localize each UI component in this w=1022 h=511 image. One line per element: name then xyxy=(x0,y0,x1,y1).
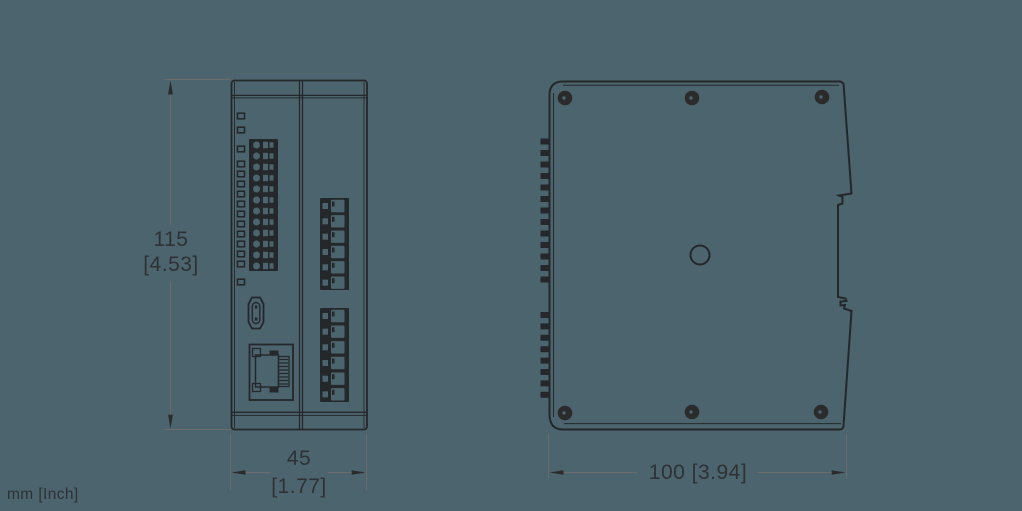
terminal-contact xyxy=(263,252,268,258)
screw-center-dot xyxy=(689,96,692,99)
terminal-contact xyxy=(263,197,268,203)
terminal-contact xyxy=(263,164,268,170)
terminal-contact xyxy=(332,327,335,332)
connector-pin-icon xyxy=(541,173,550,179)
connector-pin-icon xyxy=(541,358,550,364)
terminal-contact xyxy=(270,219,274,224)
connector-pin-icon xyxy=(541,150,550,156)
connector-pin-icon xyxy=(541,231,550,237)
terminal-contact xyxy=(332,390,335,395)
terminal-opening xyxy=(253,219,260,226)
terminal-opening xyxy=(253,164,260,171)
terminal-contact xyxy=(332,374,335,379)
terminal-block-right-lower xyxy=(320,308,349,402)
terminal-contact xyxy=(270,153,274,158)
terminal-screw-slot xyxy=(323,360,329,366)
terminal-opening xyxy=(253,263,260,270)
arrow-right-icon xyxy=(352,470,366,475)
led-indicator-icon xyxy=(238,146,245,152)
terminal-contact xyxy=(270,230,274,235)
terminal-contact xyxy=(270,263,274,268)
terminal-screw-slot xyxy=(323,249,329,255)
connector-pin-icon xyxy=(541,392,550,398)
terminal-screw-slot xyxy=(323,391,329,397)
connector-pin-icon xyxy=(541,208,550,214)
terminal-opening xyxy=(253,153,260,160)
led-indicator-icon xyxy=(238,113,245,119)
connector-pin-icon xyxy=(541,335,550,341)
terminal-contact xyxy=(332,263,335,268)
terminal-contact xyxy=(263,175,268,181)
technical-drawing-canvas: 115 [4.53] 45 [1.77] 100 [3.94] mm [Inch… xyxy=(0,0,1022,511)
terminal-contact xyxy=(263,153,268,159)
ethernet-port-icon xyxy=(250,345,294,401)
terminal-contact xyxy=(332,343,335,348)
front-width-dimension-mm-label: 45 xyxy=(258,447,340,471)
front-width-dimension-inch-label: [1.77] xyxy=(258,475,340,499)
led-indicator-icon xyxy=(238,201,245,207)
terminal-screw-slot xyxy=(323,234,329,240)
connector-pin-icon xyxy=(541,254,550,260)
screw-center-dot xyxy=(689,410,692,413)
height-dimension-inch-label: [4.53] xyxy=(131,253,211,277)
terminal-opening xyxy=(253,241,260,248)
terminal-screw-slot xyxy=(323,344,329,350)
terminal-opening xyxy=(253,230,260,237)
terminal-opening xyxy=(253,175,260,182)
height-dimension-mm-label: 115 xyxy=(131,228,211,252)
terminal-contact xyxy=(263,186,268,192)
terminal-contact xyxy=(270,142,274,147)
terminal-contact xyxy=(263,230,268,236)
led-indicator-icon xyxy=(238,211,245,217)
terminal-screw-slot xyxy=(323,376,329,382)
terminal-contact xyxy=(263,263,268,269)
terminal-opening xyxy=(253,186,260,193)
terminal-contact xyxy=(270,164,274,169)
led-indicator-column xyxy=(238,113,245,285)
front-view xyxy=(232,81,368,430)
screw-center-dot xyxy=(818,410,821,413)
led-indicator-icon xyxy=(238,171,245,177)
led-indicator-icon xyxy=(238,241,245,247)
terminal-contact xyxy=(263,208,268,214)
led-indicator-icon xyxy=(238,161,245,167)
terminal-screw-slot xyxy=(323,313,329,319)
terminal-contact xyxy=(332,359,335,364)
terminal-screw-slot xyxy=(323,264,329,270)
terminal-contact xyxy=(270,186,274,191)
terminal-block-left xyxy=(249,139,278,271)
terminal-opening xyxy=(253,142,260,149)
connector-pin-icon xyxy=(541,196,550,202)
led-indicator-icon xyxy=(238,221,245,227)
arrow-left-icon xyxy=(232,470,246,475)
connector-pin-icon xyxy=(541,265,550,271)
connector-pin-icon xyxy=(541,185,550,191)
connector-pin-icon xyxy=(541,162,550,168)
led-indicator-icon xyxy=(238,181,245,187)
terminal-contact xyxy=(270,175,274,180)
connector-pin-icon xyxy=(541,277,550,283)
terminal-screw-slot xyxy=(323,329,329,335)
arrow-left-icon xyxy=(550,470,564,475)
terminal-screw-slot xyxy=(323,218,329,224)
connector-pin-icon xyxy=(541,380,550,386)
terminal-contact xyxy=(332,247,335,252)
connector-pin-icon xyxy=(541,323,550,329)
units-note-label: mm [Inch] xyxy=(7,486,79,504)
side-view xyxy=(541,82,852,430)
connector-pin-icon xyxy=(541,312,550,318)
terminal-screw-slot xyxy=(323,280,329,286)
terminal-opening xyxy=(253,197,260,204)
side-view-housing-outline xyxy=(550,82,852,430)
terminal-contact xyxy=(263,241,268,247)
connector-pin-icon xyxy=(541,346,550,352)
terminal-opening xyxy=(253,208,260,215)
connector-pin-icon xyxy=(541,242,550,248)
led-indicator-icon xyxy=(238,261,245,267)
arrow-right-icon xyxy=(832,470,846,475)
led-indicator-icon xyxy=(238,251,245,257)
terminal-opening xyxy=(253,252,260,259)
screw-center-dot xyxy=(562,411,565,414)
terminal-contact xyxy=(332,232,335,237)
arrow-up-icon xyxy=(168,81,173,95)
terminal-contact xyxy=(332,217,335,222)
terminal-contact xyxy=(332,202,335,207)
led-indicator-icon xyxy=(238,127,245,133)
screw-center-dot xyxy=(819,95,822,98)
side-width-dimension-label: 100 [3.94] xyxy=(617,461,779,485)
terminal-screw-slot xyxy=(323,203,329,209)
terminal-contact xyxy=(270,241,274,246)
screws xyxy=(558,90,830,421)
led-indicator-icon xyxy=(238,231,245,237)
terminal-block-right-upper xyxy=(320,198,349,290)
terminal-contact xyxy=(270,252,274,257)
connector-pin-icon xyxy=(541,219,550,225)
led-indicator-icon xyxy=(238,191,245,197)
terminal-contact xyxy=(263,142,268,148)
terminal-contact xyxy=(263,219,268,225)
terminal-contact xyxy=(332,278,335,283)
arrow-down-icon xyxy=(168,415,173,429)
screw-center-dot xyxy=(562,96,565,99)
side-view-connector-pins xyxy=(541,139,550,398)
connector-pin-icon xyxy=(541,369,550,375)
led-indicator-icon xyxy=(238,279,245,285)
terminal-contact xyxy=(270,197,274,202)
connector-pin-icon xyxy=(541,139,550,145)
terminal-contact xyxy=(270,208,274,213)
terminal-contact xyxy=(332,312,335,317)
usb-port-icon xyxy=(249,298,264,329)
front-view-divider xyxy=(300,81,303,429)
mounting-hole-icon xyxy=(691,246,710,265)
